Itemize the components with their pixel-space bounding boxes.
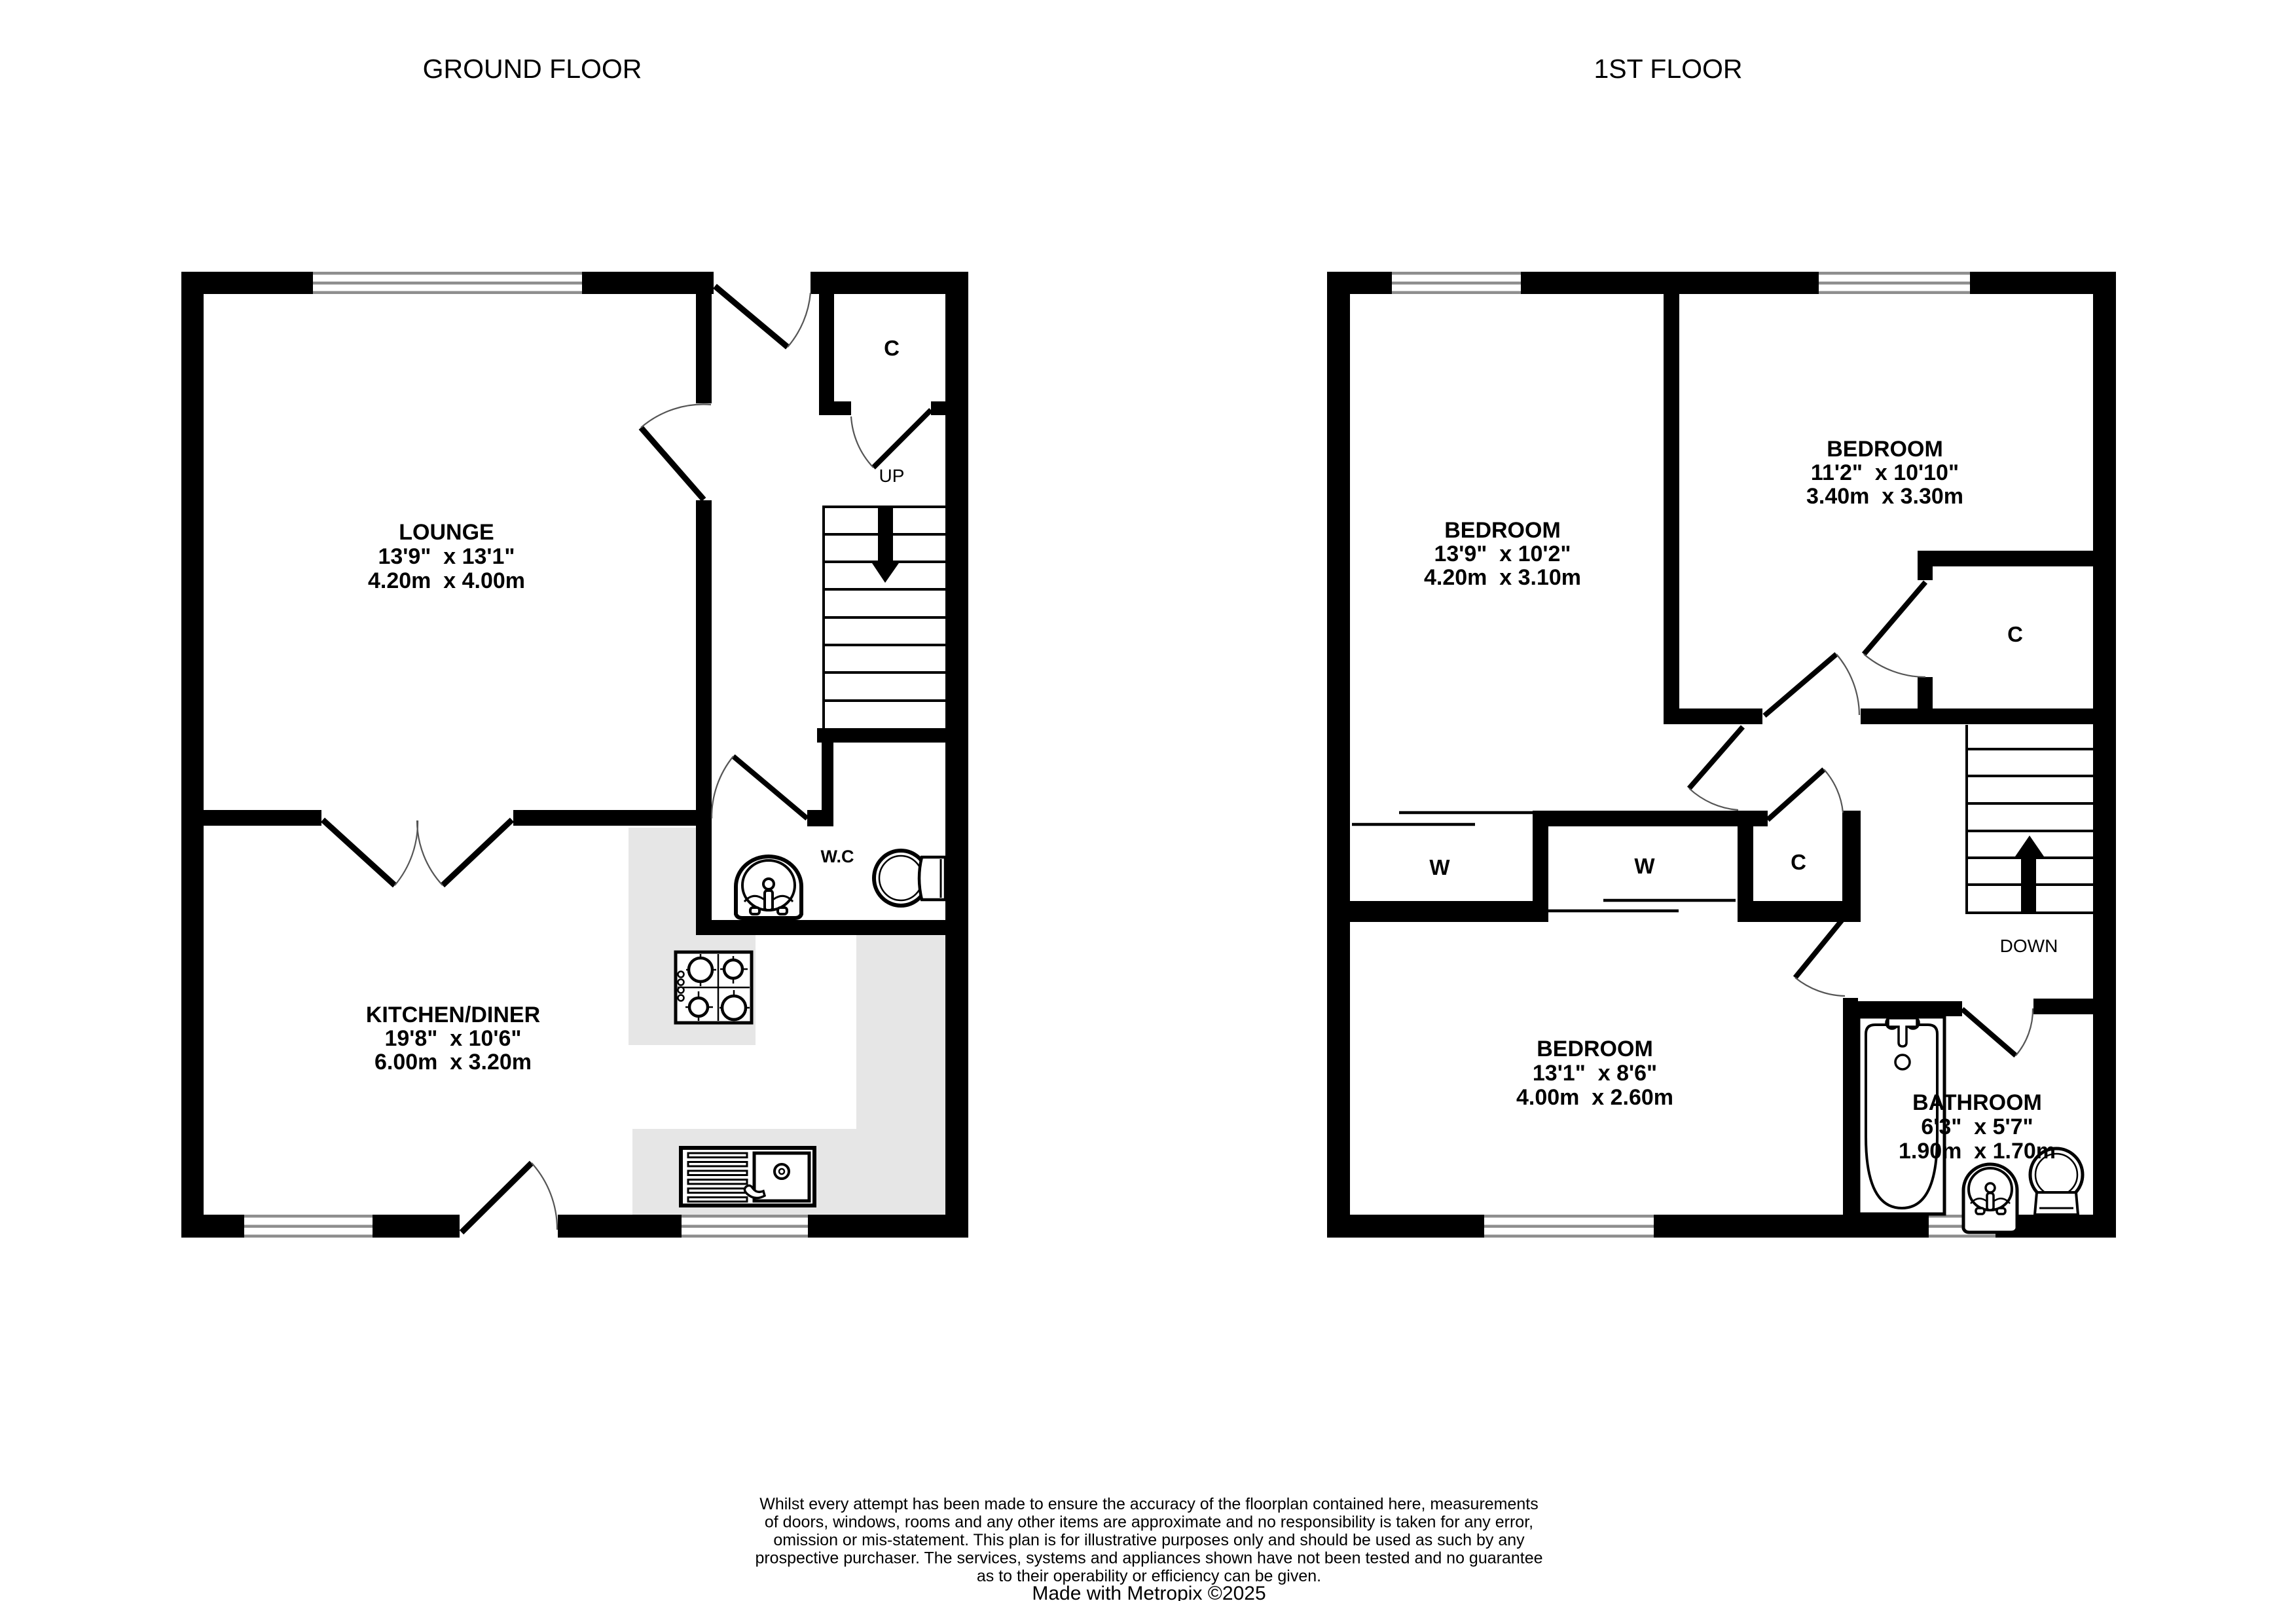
svg-text:13'9" x 13'1": 13'9" x 13'1" bbox=[378, 544, 515, 569]
svg-text:BATHROOM: BATHROOM bbox=[1912, 1090, 2042, 1115]
svg-text:W: W bbox=[1634, 854, 1655, 878]
svg-text:4.20m x 4.00m: 4.20m x 4.00m bbox=[368, 568, 525, 593]
svg-text:omission or mis-statement. Thi: omission or mis-statement. This plan is … bbox=[773, 1531, 1525, 1549]
svg-text:19'8" x 10'6": 19'8" x 10'6" bbox=[384, 1026, 521, 1051]
svg-text:Whilst every attempt has been: Whilst every attempt has been made to en… bbox=[759, 1495, 1539, 1513]
svg-text:DOWN: DOWN bbox=[2000, 936, 2058, 956]
svg-text:C: C bbox=[884, 336, 900, 360]
svg-text:BEDROOM: BEDROOM bbox=[1444, 518, 1561, 543]
svg-text:KITCHEN/DINER: KITCHEN/DINER bbox=[366, 1003, 540, 1027]
svg-text:C: C bbox=[2007, 622, 2023, 646]
svg-text:of doors, windows, rooms and a: of doors, windows, rooms and any other i… bbox=[765, 1513, 1533, 1532]
svg-text:BEDROOM: BEDROOM bbox=[1537, 1037, 1653, 1061]
svg-text:4.20m x 3.10m: 4.20m x 3.10m bbox=[1424, 565, 1581, 590]
svg-text:6.00m x 3.20m: 6.00m x 3.20m bbox=[374, 1050, 532, 1075]
svg-text:C: C bbox=[1791, 850, 1806, 874]
svg-text:UP: UP bbox=[879, 466, 905, 486]
svg-text:1.90m x 1.70m: 1.90m x 1.70m bbox=[1899, 1139, 2056, 1164]
svg-text:1ST FLOOR: 1ST FLOOR bbox=[1594, 54, 1742, 84]
svg-text:LOUNGE: LOUNGE bbox=[399, 520, 494, 545]
svg-text:6'3" x 5'7": 6'3" x 5'7" bbox=[1921, 1114, 2033, 1139]
svg-text:GROUND FLOOR: GROUND FLOOR bbox=[423, 54, 642, 84]
svg-text:prospective purchaser. The ser: prospective purchaser. The services, sys… bbox=[755, 1549, 1542, 1568]
svg-text:13'9" x 10'2": 13'9" x 10'2" bbox=[1434, 542, 1571, 566]
svg-text:3.40m x 3.30m: 3.40m x 3.30m bbox=[1806, 484, 1963, 509]
svg-text:13'1" x 8'6": 13'1" x 8'6" bbox=[1533, 1061, 1657, 1086]
svg-text:4.00m x 2.60m: 4.00m x 2.60m bbox=[1516, 1085, 1673, 1110]
svg-text:W: W bbox=[1429, 855, 1450, 879]
svg-text:11'2" x 10'10": 11'2" x 10'10" bbox=[1811, 460, 1959, 485]
svg-text:BEDROOM: BEDROOM bbox=[1827, 437, 1943, 462]
svg-text:W.C: W.C bbox=[821, 847, 854, 866]
svg-text:Made with Metropix ©2025: Made with Metropix ©2025 bbox=[1032, 1583, 1266, 1601]
